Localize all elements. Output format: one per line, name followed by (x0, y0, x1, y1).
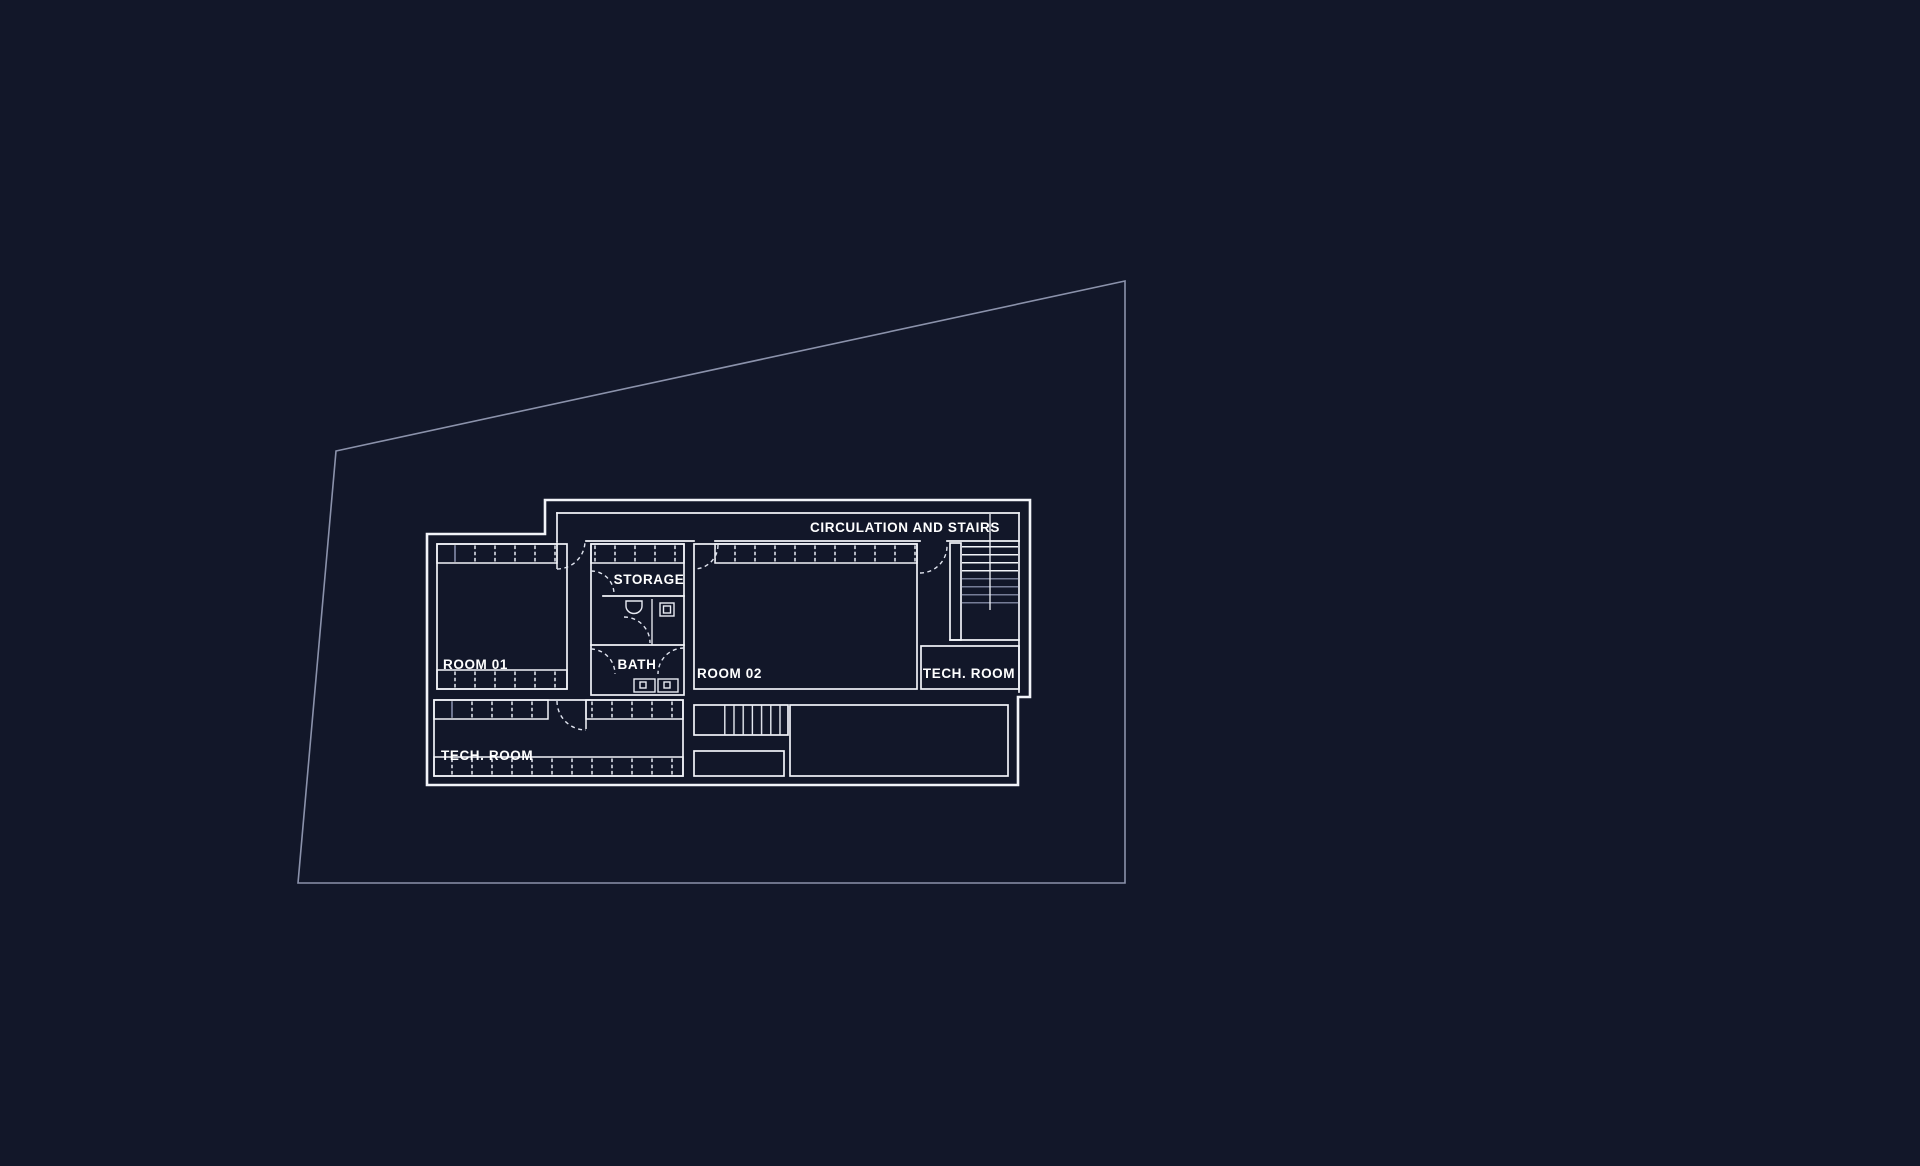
bath-label: BATH (618, 657, 657, 672)
tech-room-right-label: TECH. ROOM (923, 666, 1015, 681)
floor-plan-canvas: CIRCULATION AND STAIRS STORAGE ROOM 01 B… (0, 0, 1920, 1166)
floor-plan-drawing: CIRCULATION AND STAIRS STORAGE ROOM 01 B… (0, 0, 1920, 1166)
lower-large-room (790, 705, 1008, 776)
lower-right-section (694, 705, 1008, 776)
lower-small-room (694, 751, 784, 776)
room-01-label: ROOM 01 (443, 657, 508, 672)
sink-icon (660, 603, 674, 616)
circulation-label: CIRCULATION AND STAIRS (810, 520, 1000, 535)
tech-room-bottom-label: TECH. ROOM (441, 748, 533, 763)
storage-bath-block (591, 544, 684, 695)
toilet-icon (626, 601, 642, 614)
storage-label: STORAGE (614, 572, 685, 587)
room-02-label: ROOM 02 (697, 666, 762, 681)
basin-icons (634, 679, 678, 692)
building-outline (427, 500, 1030, 785)
